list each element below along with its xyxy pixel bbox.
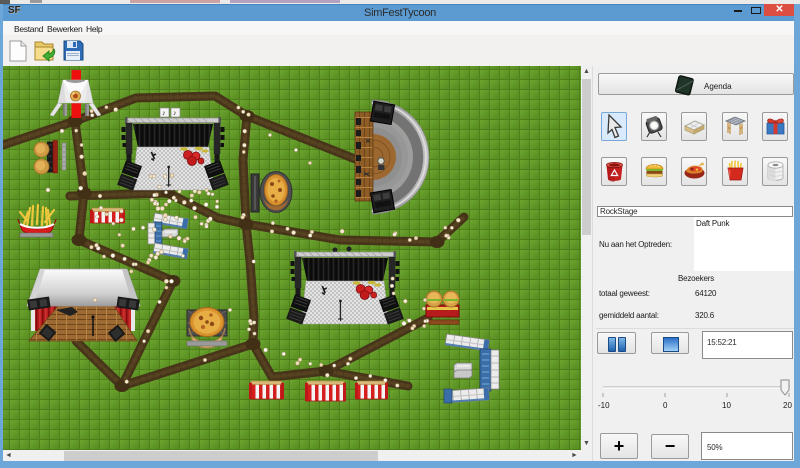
svg-text:0: 0 xyxy=(663,401,668,410)
svg-text:♪: ♪ xyxy=(173,110,177,117)
svg-text:♪: ♪ xyxy=(162,110,166,117)
svg-text:10: 10 xyxy=(722,401,731,410)
svg-text:20: 20 xyxy=(783,401,792,410)
svg-text:-10: -10 xyxy=(598,401,610,410)
svg-text:Agenda: Agenda xyxy=(704,82,732,91)
